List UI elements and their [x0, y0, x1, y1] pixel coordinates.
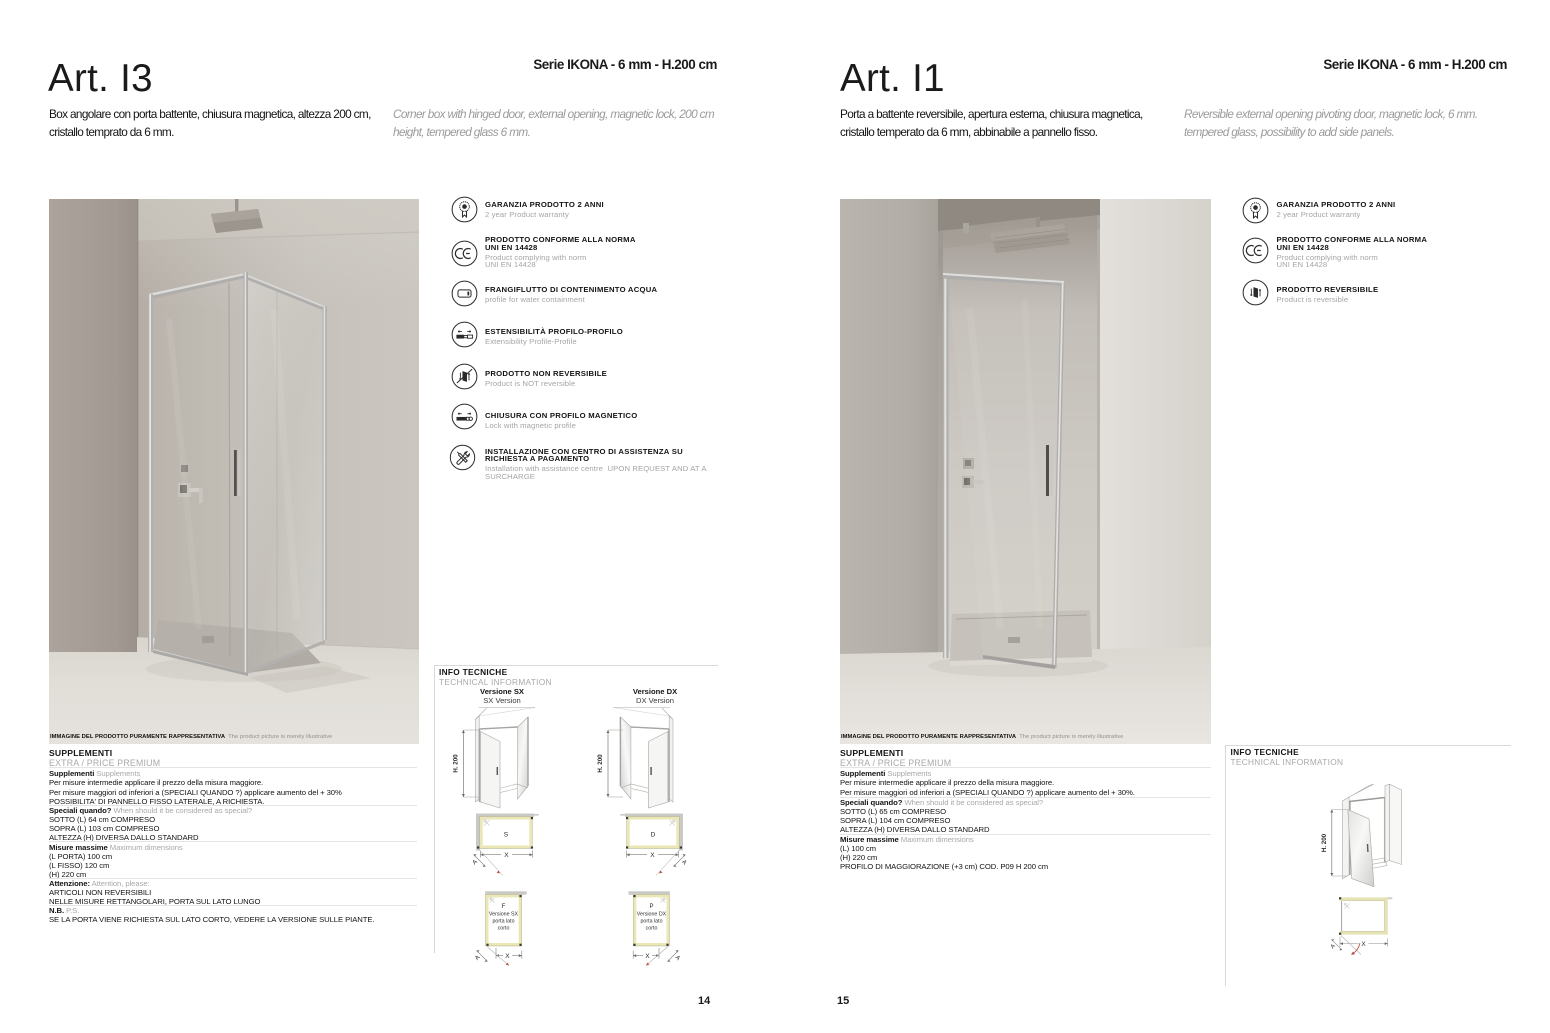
svg-text:X: X — [505, 953, 510, 960]
svg-text:X: X — [645, 953, 650, 960]
svg-text:corto: corto — [498, 926, 510, 932]
svg-text:F: F — [502, 904, 506, 910]
svg-text:P: P — [649, 904, 653, 910]
svg-text:porta lato: porta lato — [492, 919, 514, 925]
svg-text:A: A — [680, 859, 687, 866]
svg-text:A: A — [1330, 943, 1337, 950]
svg-text:A: A — [472, 859, 479, 866]
svg-text:H. 200: H. 200 — [1321, 833, 1328, 852]
svg-text:A: A — [674, 955, 681, 962]
svg-text:S: S — [504, 832, 509, 839]
svg-text:H. 200: H. 200 — [597, 754, 604, 773]
svg-text:D: D — [651, 832, 656, 839]
svg-text:H. 200: H. 200 — [453, 754, 460, 773]
svg-text:Versione DX: Versione DX — [637, 912, 667, 918]
svg-text:corto: corto — [646, 926, 658, 932]
svg-text:Versione SX: Versione SX — [489, 912, 519, 918]
svg-text:X: X — [1361, 941, 1366, 948]
svg-text:A: A — [474, 955, 481, 962]
svg-text:X: X — [504, 852, 509, 859]
svg-text:X: X — [650, 852, 655, 859]
svg-text:porta lato: porta lato — [640, 919, 662, 925]
